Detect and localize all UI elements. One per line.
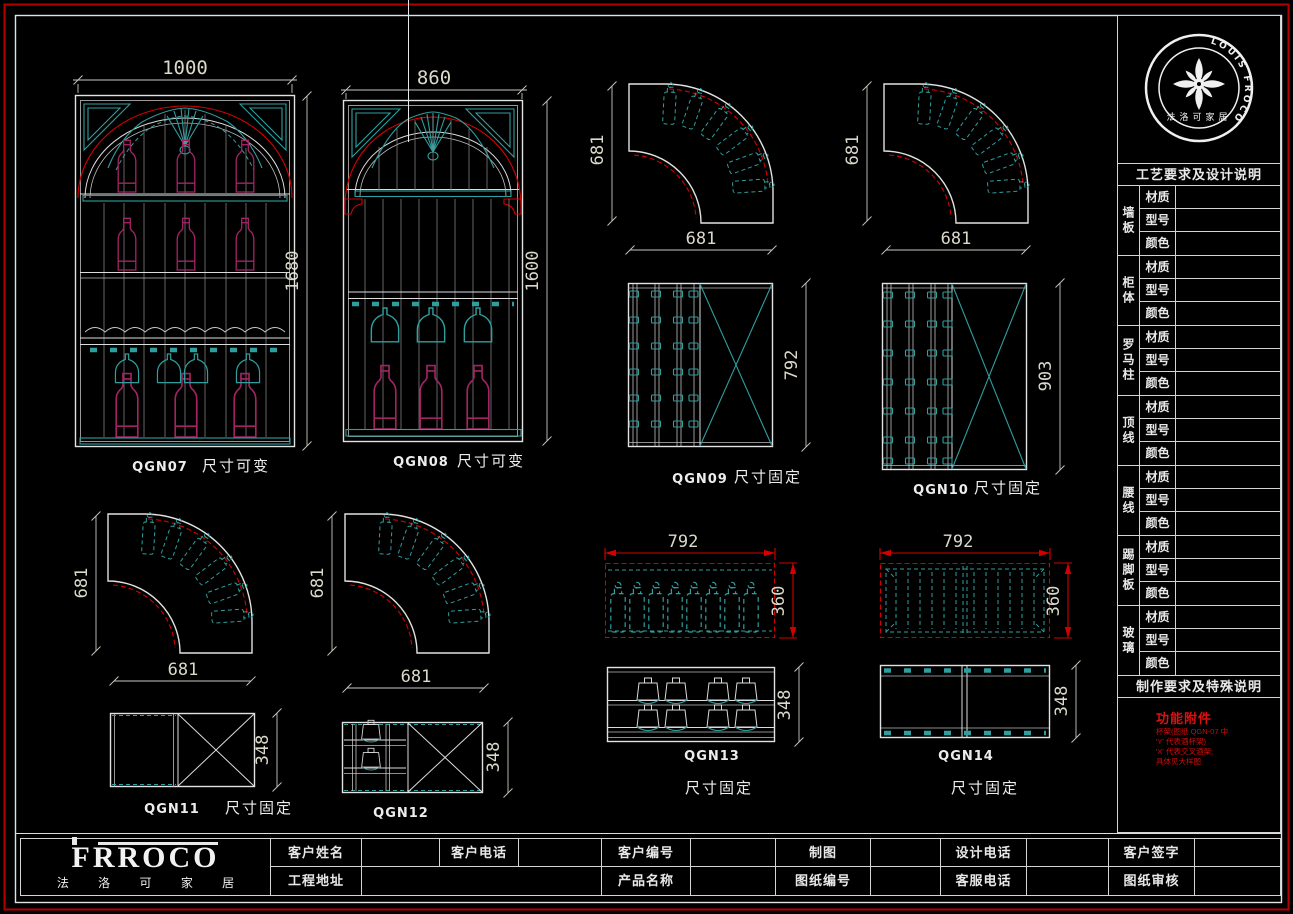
notes-line: 杯架(图纸 QGN-07 中 [1156,727,1276,737]
qgn11-front-view: 348 QGN11 尺寸固定 [111,709,294,818]
spec-group-wallpanel: 墙板 材质 型号 颜色 [1118,186,1280,256]
attr-value-cell [1176,302,1280,325]
attr-color: 颜色 [1140,652,1176,675]
group-name: 踢脚板 [1118,536,1140,605]
dim-qgn08-width: 860 [417,67,451,89]
value-customer-no [691,839,776,866]
field-service-phone: 客服电话 [941,867,1027,895]
cad-canvas[interactable]: 1000 1680 [0,0,1293,914]
dim-qgn14-front-h: 348 [1052,686,1072,717]
spec-group-roman-column: 罗马柱 材质 型号 颜色 [1118,326,1280,396]
dim-arc2-w: 681 [941,229,972,249]
spec-header: 工艺要求及设计说明 [1118,164,1280,186]
label-qgn14: QGN14 [938,749,994,764]
group-name: 腰线 [1118,466,1140,535]
attr-value-cell [1176,559,1280,581]
attr-material: 材质 [1140,606,1176,628]
title-block-row-2: 工程地址 产品名称 图纸编号 客服电话 图纸审核 [271,867,1280,895]
attr-model: 型号 [1140,559,1176,581]
plan-bottles [611,582,758,632]
attr-material: 材质 [1140,396,1176,418]
attr-color: 颜色 [1140,442,1176,465]
label-qgn12: QGN12 [373,806,429,821]
drawing-sheet: 1000 1680 [0,0,1293,914]
attr-value-cell [1176,512,1280,535]
label-qgn09: QGN09 [672,472,728,487]
group-name: 墙板 [1118,186,1140,255]
group-name: 玻璃 [1118,606,1140,675]
qgn07-front-view: 1000 1680 [73,57,312,475]
label-qgn11: QGN11 [144,802,200,817]
field-product-name: 产品名称 [602,867,691,895]
corner-arc-plan-top-right: 681 681 [843,82,1031,255]
attr-value-cell [1176,629,1280,651]
title-block: FRROCO 法 洛 可 家 居 客户姓名 客户电话 客户编号 制图 设计电话 … [20,838,1281,896]
corner-arc-plan-top-mid: 681 681 [588,82,777,255]
field-customer-no: 客户编号 [602,839,691,866]
notes-line: 'Y' 代表酒杯架) [1156,737,1276,747]
value-project-address [362,867,602,895]
field-customer-sign: 客户签字 [1109,839,1195,866]
spec-group-crown-molding: 顶线 材质 型号 颜色 [1118,396,1280,466]
dim-qgn07-width: 1000 [162,57,208,79]
attr-color: 颜色 [1140,582,1176,605]
plan-slats [886,566,1044,635]
dim-qgn12-height: 348 [484,742,504,773]
value-customer-phone [519,839,602,866]
field-drawing-no: 图纸编号 [776,867,871,895]
spec-group-waist-line: 腰线 材质 型号 颜色 [1118,466,1280,536]
dim-qgn13-plan-h: 360 [769,586,789,617]
dim-qgn07-height: 1680 [283,251,303,292]
note-qgn08: 尺寸可变 [457,453,525,470]
label-qgn13: QGN13 [684,749,740,764]
dim-qgn10-height: 903 [1036,361,1056,392]
field-designer-phone: 设计电话 [941,839,1027,866]
attr-value-cell [1176,652,1280,675]
note-qgn13: 尺寸固定 [685,780,753,797]
dim-arc1-w: 681 [686,229,717,249]
value-drafter [871,839,941,866]
attr-value-cell [1176,256,1280,278]
dim-qgn08-height: 1600 [523,251,543,292]
attr-color: 颜色 [1140,302,1176,325]
spec-group-skirting: 踢脚板 材质 型号 颜色 [1118,536,1280,606]
brand-wordmark: FRROCO [72,843,220,873]
attr-value-cell [1176,489,1280,511]
value-designer-phone [1027,839,1109,866]
attr-value-cell [1176,536,1280,558]
dim-arc2-h: 681 [843,135,863,166]
notes-area: 功能附件 杯架(图纸 QGN-07 中 'Y' 代表酒杯架) 'X' 代表交叉酒… [1118,698,1280,832]
dim-qgn13-plan-w: 792 [668,532,699,552]
dim-arc4-h: 681 [308,568,328,599]
value-drawing-review [1195,867,1280,895]
attr-value-cell [1176,582,1280,605]
group-name: 顶线 [1118,396,1140,465]
clips [630,291,699,427]
attr-color: 颜色 [1140,232,1176,255]
value-service-phone [1027,867,1109,895]
attr-value-cell [1176,326,1280,348]
cad-app-window: { "colors": { "teal": "#2f9e9e", "magent… [0,0,1293,914]
clips [884,292,953,464]
value-product-name [691,867,776,895]
dividers [365,116,509,429]
attr-model: 型号 [1140,419,1176,441]
attr-material: 材质 [1140,536,1176,558]
note-qgn14: 尺寸固定 [951,780,1019,797]
dim-qgn11-height: 348 [253,735,273,766]
field-drafter: 制图 [776,839,871,866]
field-drawing-review: 图纸审核 [1109,867,1195,895]
attr-model: 型号 [1140,489,1176,511]
dim-qgn14-plan-w: 792 [943,532,974,552]
qgn14-views: 792 360 348 QGN14 尺寸固定 [880,532,1081,797]
seal-cn-text: 法洛可家居 [1166,111,1231,122]
dividers [104,110,266,437]
bottle-ends [637,678,757,731]
company-logo: FRROCO 法 洛 可 家 居 [21,839,271,895]
notes-title: 功能附件 [1156,708,1276,727]
corner-arc-plan-bottom-left: 681 681 [72,512,256,686]
dim-qgn14-plan-h: 360 [1044,586,1064,617]
dim-qgn13-front-h: 348 [775,690,795,721]
label-qgn10: QGN10 [913,483,969,498]
corner-arc-plan-bottom-mid: 681 681 [308,512,491,693]
field-customer-phone: 客户电话 [440,839,519,866]
value-drawing-no [871,867,941,895]
attr-value-cell [1176,186,1280,208]
brand-chinese: 法 洛 可 家 居 [44,874,247,891]
note-qgn10: 尺寸固定 [974,480,1042,497]
spec-group-glass: 玻璃 材质 型号 颜色 [1118,606,1280,676]
qgn13-views: 792 360 348 [605,532,804,797]
qgn10-front-view: 903 QGN10 尺寸固定 [882,279,1065,499]
attr-value-cell [1176,606,1280,628]
dim-arc3-h: 681 [72,568,92,599]
note-qgn11: 尺寸固定 [225,800,293,817]
notes-line: 具体见大样图 [1156,757,1276,767]
brand-seal: LOUIS FROCO 法洛可家居 [1118,16,1280,164]
attr-model: 型号 [1140,629,1176,651]
notes-line: 'X' 代表交叉酒架; [1156,747,1276,757]
qgn12-front-view: 348 QGN12 [343,718,513,822]
attr-value-cell [1176,209,1280,231]
field-project-address: 工程地址 [271,867,362,895]
note-qgn09: 尺寸固定 [734,469,802,486]
dim-arc4-w: 681 [401,667,432,687]
attr-color: 颜色 [1140,512,1176,535]
value-customer-sign [1195,839,1280,866]
sheet-frame [5,5,1289,910]
attr-model: 型号 [1140,209,1176,231]
attr-material: 材质 [1140,186,1176,208]
spec-panel: LOUIS FROCO 法洛可家居 工艺要求及设计说明 墙板 材质 型号 颜色 [1117,15,1281,833]
note-qgn07: 尺寸可变 [202,458,270,475]
dim-qgn09-height: 792 [782,350,802,381]
attr-value-cell [1176,442,1280,465]
dim-arc3-w: 681 [168,660,199,680]
attr-material: 材质 [1140,326,1176,348]
qgn09-front-view: 792 QGN09 尺寸固定 [628,279,811,488]
attr-model: 型号 [1140,279,1176,301]
spec-group-cabinet: 柜体 材质 型号 颜色 [1118,256,1280,326]
notes-header: 制作要求及特殊说明 [1118,676,1280,698]
qgn08-front-view: 860 1600 [341,67,552,470]
attr-value-cell [1176,372,1280,395]
value-customer-name [362,839,440,866]
dim-arc1-h: 681 [588,135,608,166]
attr-material: 材质 [1140,466,1176,488]
attr-value-cell [1176,349,1280,371]
group-name: 罗马柱 [1118,326,1140,395]
attr-value-cell [1176,396,1280,418]
title-block-row-1: 客户姓名 客户电话 客户编号 制图 设计电话 客户签字 [271,839,1280,867]
attr-value-cell [1176,232,1280,255]
group-name: 柜体 [1118,256,1140,325]
attr-color: 颜色 [1140,372,1176,395]
attr-value-cell [1176,419,1280,441]
seal-ornament [1173,58,1225,110]
attr-value-cell [1176,279,1280,301]
label-qgn08: QGN08 [393,455,449,470]
attr-value-cell [1176,466,1280,488]
label-qgn07: QGN07 [132,460,188,475]
field-customer-name: 客户姓名 [271,839,362,866]
attr-material: 材质 [1140,256,1176,278]
attr-model: 型号 [1140,349,1176,371]
